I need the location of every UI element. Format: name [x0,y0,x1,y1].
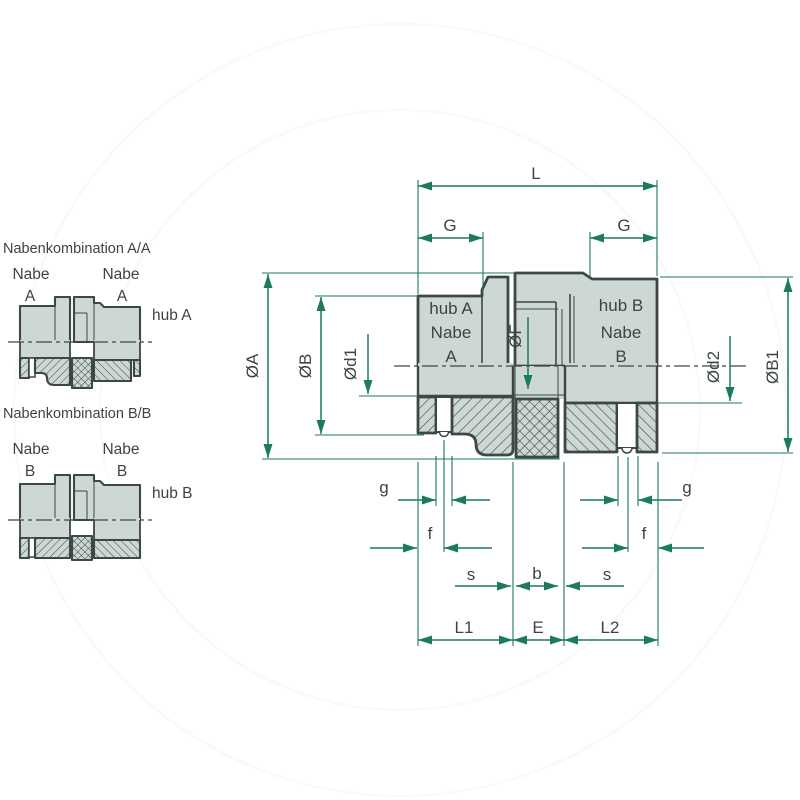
dim-label-phid1: Ød1 [341,348,360,380]
combo-aa-drawing: Nabenkombination A/A Nabe A Nabe A hub A [3,241,192,388]
dim-label-phid2: Ød2 [704,351,723,383]
main-hub-b-label-line2: Nabe [601,323,642,342]
main-hub-b-label-line3: B [615,347,626,366]
main-hub-b-label-line1: hub B [599,296,643,315]
combo-bb-title: Nabenkombination B/B [3,406,151,422]
hub-a-outline [418,277,508,366]
main-hub-a-label-line2: Nabe [431,323,472,342]
dim-label-g-left: g [379,478,388,497]
combo-aa-id-right-label: A [117,288,128,305]
combo-bb-id-right-label: B [117,463,127,480]
combo-aa-title: Nabenkombination A/A [3,241,151,257]
combo-bb-drawing: Nabenkombination B/B Nabe B Nabe B hub B [3,406,193,560]
combo-aa-id-left-label: A [25,288,36,305]
combo-bb-nabe-left-label: Nabe [12,441,49,458]
technical-drawing: Nabenkombination A/A Nabe A Nabe A hub A… [0,0,800,800]
main-hub-a-label-line1: hub A [429,299,473,318]
dim-label-b: b [532,564,541,583]
dim-label-f-left: f [428,524,433,543]
elastomer-spider-section [516,399,558,457]
hub-a-bore [418,363,513,396]
hub-a-section-main [452,397,513,455]
main-hub-a-label-line3: A [445,347,457,366]
dim-label-f-right: f [642,524,647,543]
hub-b-sleeve-outline [515,273,657,366]
dim-label-phiA: ØA [243,353,262,378]
hub-b-section-main [565,403,617,452]
combo-aa-nabe-left-label: Nabe [12,266,49,283]
dim-label-E: E [532,618,543,637]
dim-label-G-right: G [617,216,630,235]
dim-label-s-right: s [603,565,612,584]
combo-bb-id-left-label: B [25,463,35,480]
technical-drawing-page: Nabenkombination A/A Nabe A Nabe A hub A… [0,0,800,800]
dim-label-phiB1: ØB1 [763,350,782,384]
combo-aa-hub-label: hub A [152,307,192,324]
coupling-cross-section: hub A Nabe A hub B Nabe B [394,273,748,457]
hub-b-section-right [637,403,657,452]
dim-label-phiF: ØF [506,324,525,348]
combo-bb-hub-label: hub B [152,485,193,502]
dim-label-g-right: g [682,478,691,497]
dim-label-L1: L1 [455,618,474,637]
dim-label-L2: L2 [601,618,620,637]
dim-label-phiB: ØB [296,354,315,379]
hub-a-section-left [418,397,436,433]
hub-a-clamp-slot [436,397,452,432]
dim-label-s-left: s [467,565,476,584]
hub-b-clamp-slot [617,403,637,448]
combo-bb-nabe-right-label: Nabe [102,441,139,458]
dim-label-L: L [531,164,540,183]
combo-aa-nabe-right-label: Nabe [102,266,139,283]
dim-label-G-left: G [443,216,456,235]
hub-b-bore [565,363,657,403]
